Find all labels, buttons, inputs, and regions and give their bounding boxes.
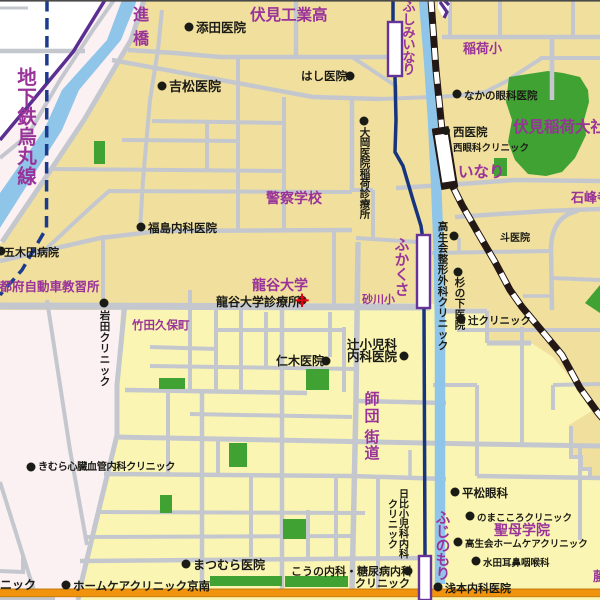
svg-text:まつむら医院: まつむら医院 (193, 557, 265, 572)
svg-text:団: 団 (364, 408, 379, 425)
svg-text:西医院: 西医院 (453, 125, 488, 139)
svg-text:内科医院: 内科医院 (347, 349, 398, 364)
svg-text:線: 線 (17, 165, 37, 188)
svg-text:のまこころクリニック: のまこころクリニック (477, 512, 572, 524)
svg-text:さ: さ (395, 282, 410, 299)
svg-text:伏見稲荷大社: 伏見稲荷大社 (513, 117, 600, 136)
svg-text:烏: 烏 (17, 125, 37, 148)
svg-text:砂川小: 砂川小 (362, 292, 395, 306)
svg-text:リニック: リニック (0, 578, 36, 592)
svg-text:聖母学院: 聖母学院 (494, 522, 550, 538)
svg-text:はし医院: はし医院 (301, 69, 347, 83)
svg-text:五木田病院: 五木田病院 (4, 245, 59, 259)
svg-text:水田耳鼻咽喉科: 水田耳鼻咽喉科 (483, 557, 550, 569)
svg-text:竹田久保町: 竹田久保町 (131, 318, 190, 332)
svg-text:ホームケアクリニック京南: ホームケアクリニック京南 (73, 579, 211, 593)
svg-text:吉松医院: 吉松医院 (169, 79, 221, 94)
svg-text:警察学校: 警察学校 (266, 190, 323, 206)
svg-text:浅本内科医院: 浅本内科医院 (445, 581, 511, 595)
svg-text:道: 道 (364, 444, 379, 462)
svg-text:街: 街 (363, 428, 379, 446)
svg-text:橋: 橋 (133, 29, 150, 48)
svg-text:高生会ホームケアクリニック: 高生会ホームケアクリニック (465, 538, 588, 550)
svg-text:きむら心臓血管内科クリニック: きむら心臓血管内科クリニック (38, 460, 175, 473)
svg-text:進: 進 (133, 6, 149, 24)
svg-text:平松眼科: 平松眼科 (462, 486, 508, 500)
svg-text:下: 下 (17, 87, 37, 109)
svg-text:石峰寺: 石峰寺 (570, 190, 600, 205)
svg-text:か: か (395, 252, 410, 269)
svg-text:所: 所 (360, 208, 371, 221)
svg-text:龍谷大学: 龍谷大学 (252, 277, 308, 293)
svg-text:科: 科 (399, 548, 409, 561)
svg-text:なかの眼科医院: なかの眼科医院 (464, 89, 538, 102)
svg-text:龍谷大学診療所: 龍谷大学診療所 (216, 294, 300, 309)
svg-text:クリニック: クリニック (355, 577, 410, 590)
svg-text:いなり: いなり (458, 163, 505, 181)
svg-text:ク: ク (438, 340, 449, 352)
svg-text:斗医院: 斗医院 (500, 231, 530, 244)
svg-text:こうの内科・糖尿病内科: こうの内科・糖尿病内科 (291, 564, 412, 578)
svg-text:り: り (402, 62, 415, 77)
svg-text:ふ: ふ (395, 237, 410, 254)
svg-text:辻クリニック: 辻クリニック (468, 314, 531, 327)
svg-text:福島内科医院: 福島内科医院 (147, 221, 217, 235)
svg-text:り: り (436, 566, 451, 583)
svg-text:ク: ク (100, 376, 111, 388)
svg-text:鉄: 鉄 (17, 106, 37, 129)
svg-text:ク: ク (388, 539, 398, 551)
svg-text:師: 師 (364, 390, 379, 408)
svg-text:く: く (395, 267, 410, 284)
svg-text:稲荷小: 稲荷小 (463, 41, 502, 56)
svg-text:藤: 藤 (593, 569, 600, 584)
svg-text:仁木医院: 仁木医院 (276, 353, 324, 368)
svg-text:添田医院: 添田医院 (196, 20, 247, 35)
svg-text:地: 地 (17, 66, 37, 89)
svg-text:京都府自動車教習所: 京都府自動車教習所 (0, 279, 100, 294)
svg-text:西眼科クリニック: 西眼科クリニック (453, 142, 529, 154)
svg-text:伏見工業高: 伏見工業高 (250, 5, 328, 24)
svg-text:丸: 丸 (16, 145, 37, 168)
